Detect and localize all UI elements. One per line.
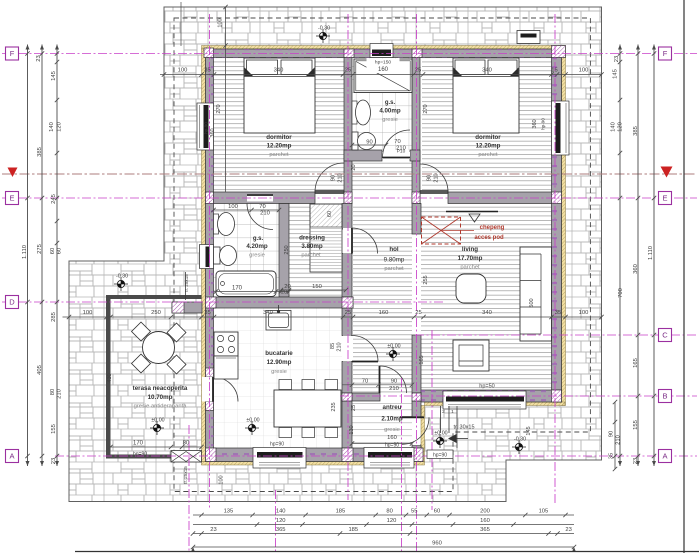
- svg-text:120: 120: [57, 122, 63, 132]
- svg-text:±0.00: ±0.00: [434, 431, 447, 437]
- svg-text:A: A: [9, 452, 14, 461]
- svg-text:1.110: 1.110: [648, 246, 654, 260]
- svg-text:170: 170: [232, 286, 243, 292]
- svg-text:living: living: [462, 246, 478, 253]
- svg-text:145: 145: [613, 69, 619, 79]
- svg-text:D: D: [9, 298, 15, 307]
- svg-text:340: 340: [482, 68, 492, 74]
- svg-text:155: 155: [633, 420, 639, 430]
- svg-text:160: 160: [480, 518, 490, 524]
- svg-text:360: 360: [633, 264, 639, 274]
- svg-text:9.80mp: 9.80mp: [384, 257, 405, 264]
- svg-text:210: 210: [338, 173, 344, 182]
- svg-text:105: 105: [539, 509, 549, 515]
- svg-text:60: 60: [327, 211, 333, 217]
- svg-text:parchet: parchet: [301, 253, 321, 259]
- svg-text:100: 100: [579, 68, 589, 74]
- svg-text:165: 165: [633, 358, 639, 368]
- svg-text:275: 275: [37, 244, 43, 254]
- svg-text:tr. 25x15: tr. 25x15: [184, 274, 189, 292]
- svg-text:1.110: 1.110: [22, 245, 28, 259]
- svg-text:60: 60: [50, 248, 56, 254]
- svg-text:hp=90: hp=90: [385, 443, 399, 449]
- svg-text:70: 70: [394, 139, 400, 145]
- svg-text:23: 23: [36, 55, 42, 61]
- svg-text:tr. 25x15: tr. 25x15: [183, 466, 188, 484]
- svg-text:155: 155: [51, 424, 57, 434]
- svg-text:23: 23: [565, 527, 571, 533]
- svg-text:B: B: [662, 392, 667, 401]
- svg-text:hp-90: hp-90: [204, 122, 209, 134]
- svg-text:100: 100: [579, 310, 589, 316]
- svg-text:70: 70: [259, 204, 265, 210]
- svg-text:405: 405: [37, 365, 43, 375]
- svg-text:270: 270: [423, 104, 429, 113]
- svg-text:parchet: parchet: [269, 152, 289, 158]
- svg-text:250: 250: [284, 245, 290, 254]
- svg-text:140: 140: [611, 122, 617, 132]
- svg-text:270: 270: [216, 104, 222, 113]
- svg-text:g.s.: g.s.: [253, 236, 264, 242]
- svg-text:340: 340: [482, 310, 492, 316]
- svg-text:35: 35: [555, 310, 561, 316]
- svg-text:90: 90: [366, 140, 372, 146]
- svg-text:145: 145: [526, 426, 532, 435]
- svg-text:-0.30: -0.30: [116, 274, 128, 280]
- svg-text:365: 365: [276, 527, 286, 533]
- svg-text:g.s.: g.s.: [385, 100, 396, 106]
- svg-text:10.70mp: 10.70mp: [148, 394, 173, 401]
- svg-text:165: 165: [419, 355, 425, 364]
- svg-text:hp=90: hp=90: [270, 442, 284, 448]
- svg-text:100: 100: [228, 204, 238, 210]
- svg-text:145: 145: [51, 71, 57, 81]
- svg-text:dormitor: dormitor: [475, 134, 501, 141]
- svg-text:4.20mp: 4.20mp: [246, 243, 268, 250]
- svg-text:55: 55: [411, 509, 417, 515]
- svg-text:90: 90: [609, 431, 615, 437]
- svg-text:E: E: [662, 194, 667, 203]
- svg-text:12.20mp: 12.20mp: [267, 143, 292, 150]
- svg-text:-0.30: -0.30: [514, 437, 526, 443]
- svg-text:60: 60: [57, 248, 63, 254]
- svg-text:100: 100: [83, 310, 93, 316]
- svg-text:15: 15: [551, 68, 557, 74]
- svg-text:35: 35: [204, 310, 210, 316]
- svg-text:80: 80: [183, 441, 190, 447]
- svg-text:2: 2: [442, 409, 445, 415]
- svg-text:385: 385: [633, 126, 639, 136]
- svg-text:±0.00: ±0.00: [246, 418, 259, 424]
- svg-text:500: 500: [529, 298, 535, 307]
- svg-text:antreu: antreu: [383, 404, 402, 411]
- svg-text:hp=150: hp=150: [375, 60, 391, 66]
- svg-text:100: 100: [219, 475, 225, 484]
- svg-text:120: 120: [276, 518, 286, 524]
- svg-text:parchet: parchet: [384, 266, 404, 272]
- svg-text:25: 25: [415, 310, 421, 316]
- svg-text:90: 90: [427, 175, 433, 181]
- svg-text:360: 360: [532, 119, 538, 128]
- svg-text:210: 210: [57, 389, 63, 399]
- svg-text:100: 100: [178, 68, 188, 74]
- svg-text:12.90mp: 12.90mp: [267, 359, 292, 366]
- svg-text:90: 90: [391, 379, 397, 385]
- svg-text:35: 35: [609, 453, 615, 459]
- svg-text:120: 120: [618, 122, 624, 132]
- svg-text:23: 23: [51, 458, 57, 464]
- svg-text:±0.00: ±0.00: [151, 418, 164, 424]
- svg-text:25: 25: [351, 405, 357, 411]
- svg-text:hp=90: hp=90: [133, 452, 147, 458]
- svg-text:gresie: gresie: [271, 369, 287, 375]
- svg-text:gresie antiderapanta: gresie antiderapanta: [134, 404, 188, 410]
- svg-text:23: 23: [614, 56, 620, 62]
- svg-text:80: 80: [386, 509, 392, 515]
- svg-text:250: 250: [151, 310, 161, 316]
- svg-text:960: 960: [432, 541, 442, 547]
- svg-text:210: 210: [434, 173, 440, 182]
- svg-text:hp-90: hp-90: [541, 118, 546, 130]
- svg-text:210: 210: [260, 211, 270, 217]
- svg-text:hp=90: hp=90: [433, 453, 447, 459]
- svg-text:F: F: [10, 49, 15, 58]
- svg-text:C: C: [662, 331, 668, 340]
- svg-text:210: 210: [337, 342, 343, 351]
- svg-text:70: 70: [362, 379, 368, 385]
- svg-text:P10: P10: [397, 149, 406, 155]
- svg-text:tr. 30x15: tr. 30x15: [453, 425, 474, 431]
- svg-text:F: F: [663, 49, 668, 58]
- svg-text:140: 140: [276, 509, 286, 515]
- svg-text:120: 120: [387, 518, 397, 524]
- svg-text:23: 23: [633, 458, 639, 464]
- svg-text:60: 60: [434, 509, 440, 515]
- svg-text:1: 1: [451, 409, 454, 415]
- svg-text:340: 340: [263, 310, 273, 316]
- svg-text:430: 430: [107, 373, 113, 382]
- svg-text:285: 285: [51, 312, 57, 322]
- svg-text:160: 160: [387, 435, 397, 441]
- svg-text:170: 170: [133, 441, 144, 447]
- svg-text:20: 20: [281, 290, 287, 296]
- svg-text:25: 25: [345, 310, 351, 316]
- svg-text:4.00mp: 4.00mp: [379, 108, 401, 115]
- svg-text:360: 360: [210, 128, 216, 137]
- svg-text:dressing: dressing: [299, 235, 325, 242]
- svg-text:23: 23: [210, 527, 216, 533]
- svg-text:dormitor: dormitor: [266, 134, 292, 141]
- svg-text:gresie: gresie: [382, 117, 398, 123]
- svg-text:terasa neacoperita: terasa neacoperita: [133, 385, 188, 392]
- svg-text:210: 210: [389, 386, 399, 392]
- svg-text:20: 20: [351, 164, 357, 170]
- svg-text:gresie: gresie: [249, 253, 265, 259]
- svg-text:2.10mp: 2.10mp: [381, 416, 403, 423]
- svg-text:3.80mp: 3.80mp: [301, 243, 323, 250]
- svg-text:A: A: [662, 452, 667, 461]
- svg-text:340: 340: [274, 68, 284, 74]
- svg-text:210: 210: [616, 435, 622, 445]
- svg-text:17.70mp: 17.70mp: [458, 255, 483, 262]
- svg-text:700: 700: [618, 288, 624, 298]
- svg-text:80: 80: [50, 389, 56, 395]
- svg-text:bucatarie: bucatarie: [265, 350, 293, 357]
- svg-text:245: 245: [51, 194, 57, 204]
- svg-text:hp=50: hp=50: [479, 384, 494, 390]
- svg-text:140: 140: [49, 122, 55, 132]
- svg-text:hol: hol: [389, 246, 399, 253]
- svg-text:chepeng: chepeng: [480, 225, 505, 231]
- svg-text:235: 235: [331, 402, 337, 411]
- svg-text:35: 35: [204, 68, 210, 74]
- svg-text:parchet: parchet: [460, 265, 480, 271]
- svg-text:25: 25: [345, 68, 351, 74]
- svg-text:365: 365: [480, 527, 490, 533]
- svg-text:acces pod: acces pod: [474, 235, 504, 241]
- svg-text:160: 160: [378, 67, 389, 73]
- svg-text:200: 200: [480, 509, 490, 515]
- svg-text:185: 185: [348, 527, 358, 533]
- svg-text:150: 150: [312, 284, 322, 290]
- svg-text:100: 100: [218, 18, 224, 27]
- svg-text:25: 25: [415, 68, 421, 74]
- svg-text:12.20mp: 12.20mp: [476, 143, 501, 150]
- svg-text:385: 385: [37, 147, 43, 157]
- svg-text:160: 160: [379, 310, 389, 316]
- svg-text:E: E: [9, 194, 14, 203]
- svg-text:130: 130: [349, 425, 355, 434]
- svg-text:gresie: gresie: [384, 427, 400, 433]
- svg-text:255: 255: [423, 275, 429, 284]
- svg-text:135: 135: [224, 509, 234, 515]
- svg-text:185: 185: [336, 509, 346, 515]
- svg-text:85: 85: [330, 343, 336, 349]
- svg-text:-0.30: -0.30: [318, 26, 330, 32]
- svg-text:±0.00: ±0.00: [387, 344, 400, 350]
- svg-text:90: 90: [331, 175, 337, 181]
- svg-text:parchet: parchet: [478, 152, 498, 158]
